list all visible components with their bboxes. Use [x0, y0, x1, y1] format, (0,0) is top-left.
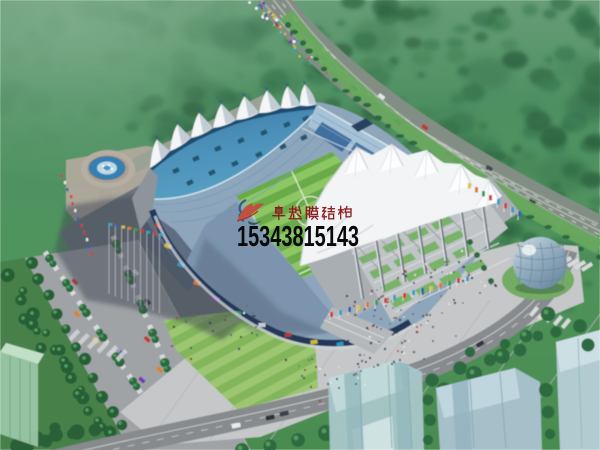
svg-text:15343815143: 15343815143 [237, 221, 359, 253]
